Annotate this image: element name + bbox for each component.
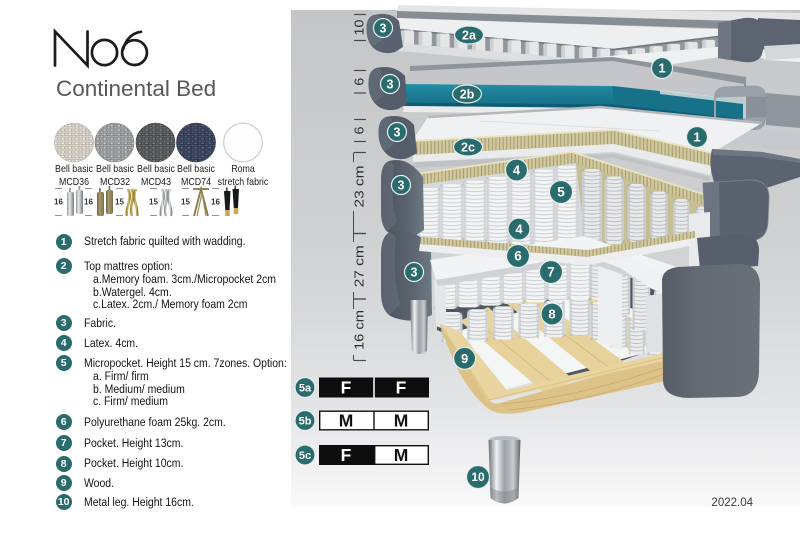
svg-text:1: 1 (658, 61, 665, 76)
svg-text:10: 10 (352, 20, 367, 36)
svg-text:8: 8 (548, 307, 555, 322)
svg-text:1: 1 (693, 130, 700, 145)
svg-text:27 cm: 27 cm (352, 245, 367, 287)
svg-text:2b: 2b (460, 87, 475, 101)
svg-text:5b: 5b (299, 415, 312, 427)
svg-text:3: 3 (398, 178, 405, 192)
svg-text:F: F (341, 445, 352, 465)
svg-text:5a: 5a (299, 382, 312, 394)
svg-text:5: 5 (557, 185, 565, 200)
svg-text:4: 4 (513, 163, 521, 178)
svg-text:M: M (394, 411, 409, 431)
svg-text:2022.04: 2022.04 (711, 497, 753, 509)
svg-text:F: F (396, 378, 407, 398)
svg-text:M: M (339, 411, 354, 431)
svg-text:23 cm: 23 cm (352, 166, 367, 208)
svg-text:2c: 2c (461, 140, 475, 154)
svg-text:3: 3 (380, 21, 387, 35)
svg-text:F: F (341, 378, 352, 398)
svg-text:M: M (394, 445, 409, 465)
svg-text:6: 6 (352, 127, 367, 135)
svg-text:3: 3 (387, 77, 394, 91)
svg-text:9: 9 (461, 351, 468, 366)
svg-text:5c: 5c (299, 450, 311, 462)
svg-text:6: 6 (514, 249, 522, 264)
svg-text:3: 3 (411, 265, 418, 279)
svg-text:4: 4 (515, 222, 523, 237)
svg-text:10: 10 (471, 470, 485, 484)
svg-text:2a: 2a (462, 28, 477, 42)
svg-text:16 cm: 16 cm (352, 310, 367, 350)
svg-text:3: 3 (394, 125, 401, 139)
svg-text:7: 7 (547, 265, 555, 280)
svg-text:6: 6 (352, 78, 367, 86)
